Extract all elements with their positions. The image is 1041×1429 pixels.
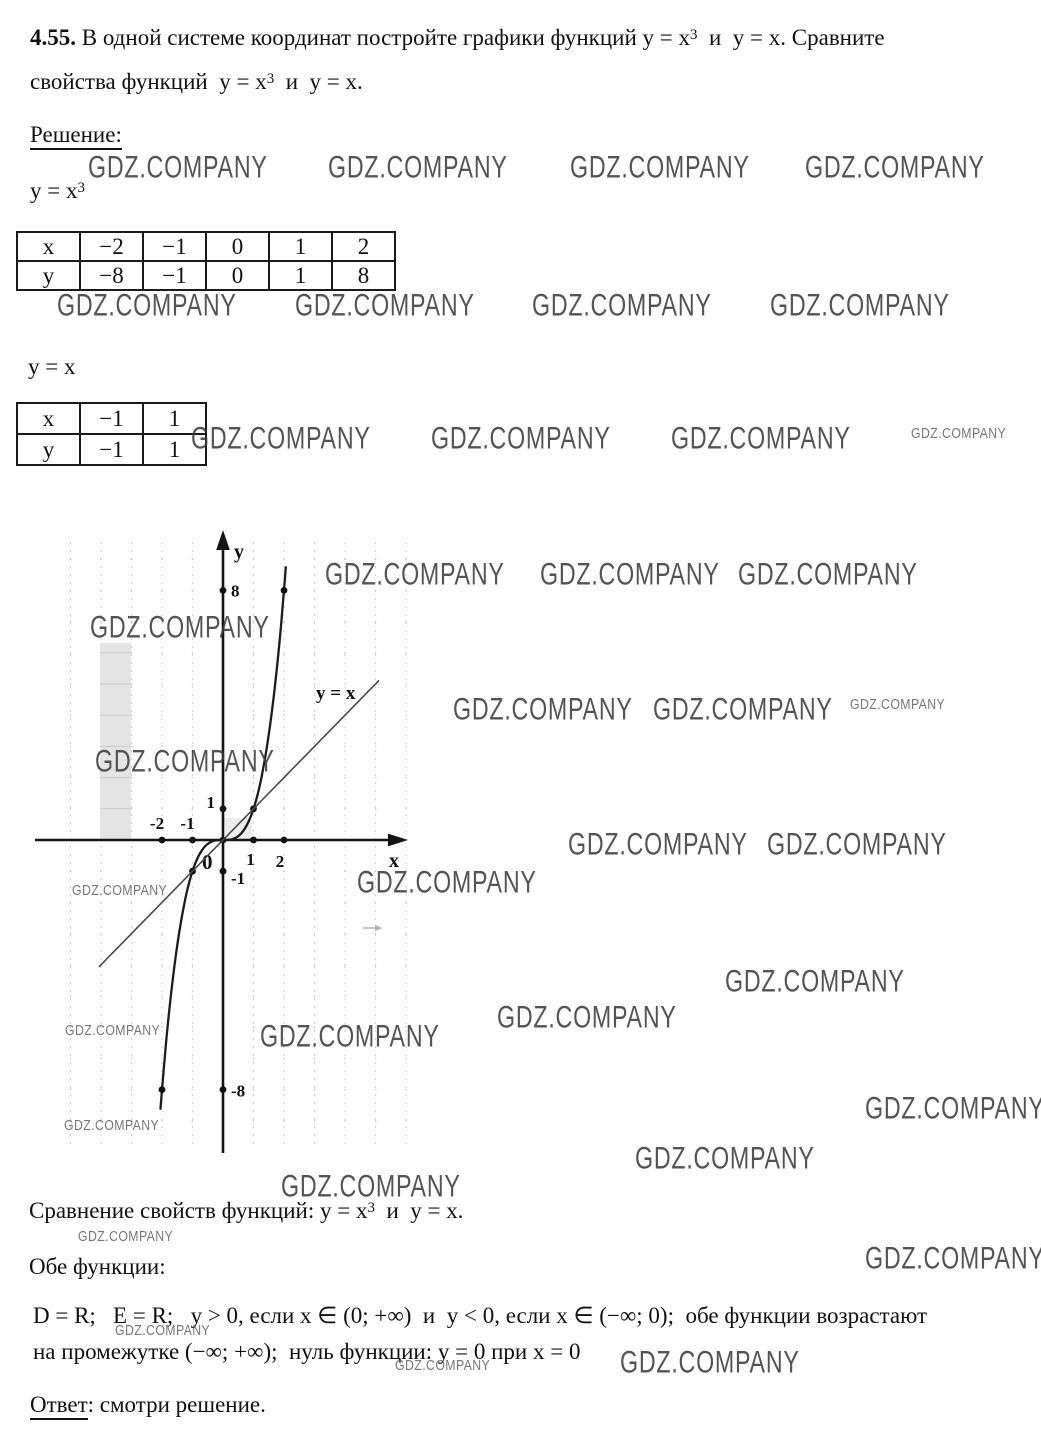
grid-dot (100, 621, 102, 623)
value-cell: −2 (80, 232, 143, 261)
problem-line-2: свойства функций y = x3 и y = x. (30, 60, 885, 104)
grid-dot (253, 683, 255, 685)
grid-dot (100, 1026, 102, 1028)
grid-dot (283, 933, 285, 935)
table-row: y−11 (17, 434, 206, 465)
grid-dot (283, 1120, 285, 1122)
x-tick-label: 1 (246, 850, 255, 869)
grid-dot (344, 995, 346, 997)
grid-dot (314, 1089, 316, 1091)
grid-dot (100, 1120, 102, 1122)
comparison-heading: Сравнение свойств функций: y = x3 и y = … (29, 1196, 463, 1226)
grid-dot (344, 1089, 346, 1091)
value-cell: 1 (143, 403, 206, 434)
grid-dot (375, 964, 377, 966)
grid-dot (70, 652, 72, 654)
grid-dot (100, 902, 102, 904)
grid-dot (161, 1026, 163, 1028)
value-cell: −8 (80, 261, 143, 290)
grid-dot (405, 1120, 407, 1122)
grid-dot (70, 870, 72, 872)
grid-dot (70, 1089, 72, 1091)
value-cell: −1 (80, 403, 143, 434)
y-tick-label: -1 (231, 869, 245, 888)
grid-dot (314, 621, 316, 623)
grid-dot (70, 777, 72, 779)
watermark: GDZ.COMPANY (865, 1092, 1041, 1124)
grid-dot (375, 870, 377, 872)
row-header-cell: x (17, 403, 80, 434)
table-row: x−11 (17, 403, 206, 434)
grid-dot (314, 714, 316, 716)
grid-dot (253, 1026, 255, 1028)
y-tick-label: 1 (207, 793, 216, 812)
grid-dot (253, 933, 255, 935)
values-table-cubic: x−2−1012y−8−1018 (16, 231, 396, 291)
grid-dot (100, 1089, 102, 1091)
grid-dot (314, 558, 316, 560)
table-row: x−2−1012 (17, 232, 395, 261)
grid-dot (161, 870, 163, 872)
value-cell: 8 (332, 261, 395, 290)
row-header-cell: y (17, 434, 80, 465)
grid-dot (131, 590, 133, 592)
grid-dot (192, 558, 194, 560)
grid-dot (161, 808, 163, 810)
watermark: GDZ.COMPANY (88, 151, 268, 183)
y-tick-label: 8 (231, 581, 240, 600)
grid-dot (375, 933, 377, 935)
grid-dot (405, 683, 407, 685)
values-table-linear: x−11y−11 (16, 402, 207, 466)
grid-dot (314, 1058, 316, 1060)
grid-dot (375, 995, 377, 997)
grid-dot (283, 621, 285, 623)
grid-dot (100, 933, 102, 935)
grid-dot (131, 1026, 133, 1028)
both-functions-label: Обе функции: (29, 1252, 166, 1282)
table-row: y−8−1018 (17, 261, 395, 290)
y-axis-label: y (234, 541, 244, 563)
grid-dot (161, 683, 163, 685)
y-tick-dot (220, 868, 227, 875)
grid-dot (375, 590, 377, 592)
grid-dot (192, 1120, 194, 1122)
grid-dot (314, 870, 316, 872)
grid-dot (192, 933, 194, 935)
line-identity (100, 681, 379, 967)
grid-dot (314, 1026, 316, 1028)
scanned-solution-page: 4.55. В одной системе координат постройт… (0, 0, 1041, 1429)
grid-dot (161, 558, 163, 560)
grid-dot (405, 621, 407, 623)
watermark: GDZ.COMPANY (295, 289, 475, 321)
grid-dot (375, 746, 377, 748)
grid-dot (344, 870, 346, 872)
grid-dot (375, 777, 377, 779)
value-cell: 1 (269, 232, 332, 261)
grid-dot (344, 746, 346, 748)
scan-artifact-arrow (375, 925, 382, 931)
grid-dot (253, 1089, 255, 1091)
grid-dot (405, 995, 407, 997)
grid-dot (253, 714, 255, 716)
x-tick-dot (281, 837, 288, 844)
grid-dot (344, 902, 346, 904)
properties-paragraph: D = R; E = R; y > 0, если x ∈ (0; +∞) и … (33, 1298, 927, 1370)
grid-dot (192, 714, 194, 716)
watermark: GDZ.COMPANY (453, 693, 633, 725)
grid-dot (344, 590, 346, 592)
grid-dot (70, 683, 72, 685)
watermark: GDZ.COMPANY (191, 422, 371, 454)
grid-dot (131, 870, 133, 872)
solution-heading: Решение: (30, 120, 122, 150)
value-cell: 2 (332, 232, 395, 261)
grid-dot (283, 1089, 285, 1091)
graph-svg: yx0y = x-2-11281-1-8 (30, 520, 430, 1165)
grid-dot (344, 621, 346, 623)
properties-line-1: D = R; E = R; y > 0, если x ∈ (0; +∞) и … (33, 1298, 927, 1334)
grid-dot (314, 808, 316, 810)
grid-dot (70, 746, 72, 748)
grid-dot (161, 933, 163, 935)
exponent: 3 (367, 1200, 375, 1216)
grid-dot (405, 746, 407, 748)
grid-dot (131, 558, 133, 560)
y-axis-arrow (216, 530, 230, 550)
grid-dot (100, 995, 102, 997)
answer-line: Ответ: смотри решение. (30, 1390, 266, 1420)
value-cell: 1 (269, 261, 332, 290)
data-point (281, 587, 288, 594)
grid-dot (283, 995, 285, 997)
watermark: GDZ.COMPANY (805, 151, 985, 183)
grid-dot (161, 621, 163, 623)
x-tick-dot (189, 837, 196, 844)
grid-dot (253, 777, 255, 779)
grid-dot (314, 1120, 316, 1122)
grid-dot (100, 870, 102, 872)
grid-dot (314, 590, 316, 592)
scan-band (100, 643, 131, 840)
problem-number: 4.55. (30, 25, 76, 50)
grid-dot (131, 1089, 133, 1091)
grid-dot (192, 902, 194, 904)
grid-dot (405, 777, 407, 779)
grid-dot (253, 870, 255, 872)
watermark: GDZ.COMPANY (497, 1001, 677, 1033)
watermark: GDZ.COMPANY (540, 558, 720, 590)
grid-dot (314, 902, 316, 904)
x-tick-dot (159, 837, 166, 844)
watermark: GDZ.COMPANY (568, 828, 748, 860)
watermark: GDZ.COMPANY (532, 289, 712, 321)
grid-dot (375, 1058, 377, 1060)
function-1-label: y = x3 (30, 176, 85, 206)
grid-dot (70, 964, 72, 966)
grid-dot (283, 808, 285, 810)
watermark: GDZ.COMPANY (725, 965, 905, 997)
grid-dot (375, 1120, 377, 1122)
grid-dot (70, 1026, 72, 1028)
grid-dot (192, 964, 194, 966)
grid-dot (70, 1058, 72, 1060)
x-tick-label: 2 (276, 852, 285, 871)
grid-dot (405, 1089, 407, 1091)
y-tick-dot (220, 805, 227, 812)
y-tick-dot (220, 587, 227, 594)
watermark: GDZ.COMPANY (635, 1142, 815, 1174)
watermark: GDZ.COMPANY (850, 697, 945, 712)
grid-dot (70, 714, 72, 716)
grid-dot (131, 902, 133, 904)
grid-dot (192, 808, 194, 810)
watermark: GDZ.COMPANY (767, 828, 947, 860)
exponent: 3 (77, 180, 85, 196)
grid-dot (405, 902, 407, 904)
properties-line-2: на промежутке (−∞; +∞); нуль функции: y … (33, 1334, 927, 1370)
grid-dot (192, 995, 194, 997)
grid-dot (70, 1120, 72, 1122)
value-cell: −1 (143, 261, 206, 290)
watermark: GDZ.COMPANY (653, 693, 833, 725)
grid-dot (375, 902, 377, 904)
data-point (159, 1086, 166, 1093)
grid-dot (253, 995, 255, 997)
grid-dot (253, 1058, 255, 1060)
grid-dot (192, 1058, 194, 1060)
grid-dot (100, 590, 102, 592)
x-axis-arrow (388, 834, 408, 847)
grid-dot (192, 621, 194, 623)
value-cell: 0 (206, 261, 269, 290)
grid-dot (344, 808, 346, 810)
grid-dot (70, 902, 72, 904)
grid-dot (344, 1026, 346, 1028)
grid-dot (375, 558, 377, 560)
grid-dot (405, 1058, 407, 1060)
grid-dot (314, 652, 316, 654)
solution-label: Решение: (30, 122, 122, 150)
grid-dot (253, 652, 255, 654)
grid-dot (253, 902, 255, 904)
grid-dot (344, 933, 346, 935)
grid-dot (100, 558, 102, 560)
grid-dot (70, 995, 72, 997)
grid-dot (161, 777, 163, 779)
grid-dot (161, 590, 163, 592)
grid-dot (405, 964, 407, 966)
grid-dot (283, 746, 285, 748)
answer-label: Ответ (30, 1392, 88, 1420)
x-tick-label: -2 (150, 814, 164, 833)
value-cell: 1 (143, 434, 206, 465)
grid-dot (283, 652, 285, 654)
graph: yx0y = x-2-11281-1-8 (30, 520, 430, 1165)
grid-dot (405, 933, 407, 935)
grid-dot (100, 1058, 102, 1060)
grid-dot (161, 1058, 163, 1060)
grid-dot (253, 558, 255, 560)
grid-dot (283, 1058, 285, 1060)
grid-dot (161, 714, 163, 716)
grid-dot (405, 590, 407, 592)
grid-dot (405, 652, 407, 654)
grid-dot (283, 714, 285, 716)
grid-dot (344, 558, 346, 560)
grid-dot (283, 683, 285, 685)
grid-dot (344, 1058, 346, 1060)
grid-dot (314, 995, 316, 997)
grid-dot (192, 777, 194, 779)
grid-dot (283, 964, 285, 966)
grid-dot (131, 621, 133, 623)
row-header-cell: y (17, 261, 80, 290)
grid-dot (192, 652, 194, 654)
grid-dot (405, 808, 407, 810)
grid-dot (70, 808, 72, 810)
grid-dot (375, 714, 377, 716)
grid-dot (375, 652, 377, 654)
line-label: y = x (316, 683, 356, 704)
grid-dot (405, 1026, 407, 1028)
grid-dot (344, 652, 346, 654)
grid-dot (161, 652, 163, 654)
grid-dot (131, 964, 133, 966)
watermark: GDZ.COMPANY (911, 426, 1006, 441)
watermark: GDZ.COMPANY (570, 151, 750, 183)
grid-dot (253, 621, 255, 623)
grid-dot (344, 1120, 346, 1122)
x-axis-label: x (389, 850, 399, 872)
grid-dot (375, 808, 377, 810)
function-2-label: y = x (28, 352, 75, 382)
grid-dot (314, 777, 316, 779)
grid-dot (253, 964, 255, 966)
grid-dot (253, 746, 255, 748)
grid-dot (283, 1026, 285, 1028)
grid-dot (314, 964, 316, 966)
grid-dot (405, 558, 407, 560)
grid-dot (375, 1089, 377, 1091)
grid-dot (375, 621, 377, 623)
grid-dot (405, 714, 407, 716)
value-cell: −1 (80, 434, 143, 465)
value-cell: 0 (206, 232, 269, 261)
problem-line-1: 4.55. В одной системе координат постройт… (30, 16, 885, 60)
row-header-cell: x (17, 232, 80, 261)
grid-dot (405, 870, 407, 872)
grid-dot (70, 933, 72, 935)
grid-dot (161, 1120, 163, 1122)
grid-dot (70, 590, 72, 592)
watermark: GDZ.COMPANY (78, 1229, 173, 1244)
watermark: GDZ.COMPANY (738, 558, 918, 590)
grid-dot (253, 590, 255, 592)
grid-dot (192, 683, 194, 685)
grid-dot (375, 1026, 377, 1028)
grid-dot (161, 995, 163, 997)
grid-dot (253, 1120, 255, 1122)
problem-statement: 4.55. В одной системе координат постройт… (30, 16, 885, 104)
grid-dot (283, 558, 285, 560)
value-cell: −1 (143, 232, 206, 261)
y-tick-label: -8 (231, 1082, 245, 1101)
grid-dot (192, 1089, 194, 1091)
grid-dot (283, 902, 285, 904)
y-tick-dot (220, 1086, 227, 1093)
grid-dot (161, 964, 163, 966)
grid-dot (192, 746, 194, 748)
grid-dot (161, 746, 163, 748)
x-tick-dot (250, 837, 257, 844)
grid-dot (70, 558, 72, 560)
answer-text: : смотри решение. (88, 1392, 266, 1417)
grid-dot (344, 777, 346, 779)
x-tick-label: -1 (180, 814, 194, 833)
watermark: GDZ.COMPANY (431, 422, 611, 454)
grid-dot (314, 933, 316, 935)
watermark: GDZ.COMPANY (57, 289, 237, 321)
origin-label: 0 (202, 850, 213, 874)
watermark: GDZ.COMPANY (770, 289, 950, 321)
grid-dot (344, 964, 346, 966)
grid-dot (192, 1026, 194, 1028)
grid-dot (131, 1120, 133, 1122)
grid-dot (192, 590, 194, 592)
watermark: GDZ.COMPANY (328, 151, 508, 183)
grid-dot (70, 621, 72, 623)
grid-dot (131, 1058, 133, 1060)
watermark: GDZ.COMPANY (671, 422, 851, 454)
grid-dot (131, 995, 133, 997)
watermark: GDZ.COMPANY (865, 1242, 1041, 1274)
